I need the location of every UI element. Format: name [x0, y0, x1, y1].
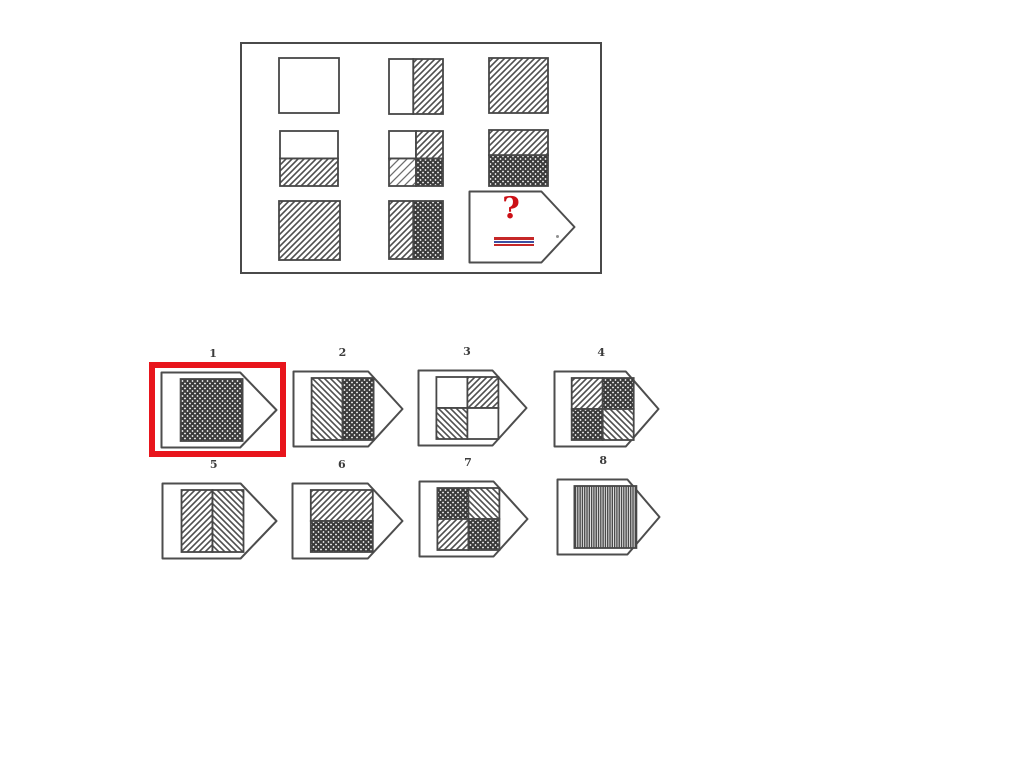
speck-dot — [556, 235, 559, 238]
option-figure-5 — [161, 482, 278, 560]
answer-option-8[interactable]: 8 — [556, 449, 661, 556]
matrix-cell-r2c2 — [388, 130, 444, 187]
answer-option-1[interactable]: 1 — [160, 342, 278, 449]
option-tag — [291, 482, 404, 560]
option-number: 4 — [553, 341, 649, 370]
option-figure-8 — [556, 478, 661, 556]
matrix-figure-r1c2 — [388, 58, 444, 115]
answer-option-6[interactable]: 6 — [291, 453, 404, 560]
option-tag — [161, 482, 278, 560]
underline-stroke — [494, 244, 534, 246]
puzzle-canvas: ? 1 2 3 4 5 6 7 8 — [0, 0, 1024, 767]
option-figure-2 — [292, 370, 404, 448]
answer-option-3[interactable]: 3 — [417, 340, 528, 447]
answer-option-2[interactable]: 2 — [292, 341, 404, 448]
option-tag — [160, 371, 278, 449]
question-cell: ? — [468, 190, 576, 264]
option-number: 1 — [160, 342, 266, 371]
answer-option-4[interactable]: 4 — [553, 341, 660, 448]
matrix-figure-r1c1 — [278, 57, 340, 114]
option-figure-3 — [417, 369, 528, 447]
option-number: 6 — [291, 453, 393, 482]
option-figure-6 — [291, 482, 404, 560]
matrix-cell-r1c1 — [278, 57, 340, 114]
matrix-cell-r3c2 — [388, 200, 444, 260]
option-tag — [417, 369, 528, 447]
matrix-figure-r2c2 — [388, 130, 444, 187]
matrix-cell-r2c3 — [488, 129, 549, 187]
option-tag — [292, 370, 404, 448]
matrix-figure-r2c3 — [488, 129, 549, 187]
underline-stroke — [494, 241, 534, 243]
matrix-figure-r2c1 — [279, 130, 339, 187]
option-number: 2 — [292, 341, 393, 370]
underline-stroke — [494, 237, 534, 240]
matrix-cell-r3c1 — [278, 200, 341, 261]
option-figure-1 — [160, 371, 278, 449]
answer-option-7[interactable]: 7 — [418, 451, 529, 558]
option-figure-7 — [418, 480, 529, 558]
matrix-figure-r1c3 — [488, 57, 549, 114]
option-figure-4 — [553, 370, 660, 448]
option-tag — [556, 478, 661, 556]
matrix-cell-r2c1 — [279, 130, 339, 187]
option-tag — [418, 480, 529, 558]
answer-option-5[interactable]: 5 — [161, 453, 278, 560]
option-number: 8 — [556, 449, 651, 478]
matrix-cell-r1c2 — [388, 58, 444, 115]
option-tag — [553, 370, 660, 448]
matrix-figure-r3c1 — [278, 200, 341, 261]
option-number: 3 — [417, 340, 517, 369]
matrix-figure-r3c2 — [388, 200, 444, 260]
question-mark: ? — [468, 194, 554, 224]
question-underline — [494, 237, 534, 247]
option-number: 7 — [418, 451, 518, 480]
matrix-panel: ? — [240, 42, 602, 274]
option-number: 5 — [161, 453, 266, 482]
matrix-cell-r1c3 — [488, 57, 549, 114]
